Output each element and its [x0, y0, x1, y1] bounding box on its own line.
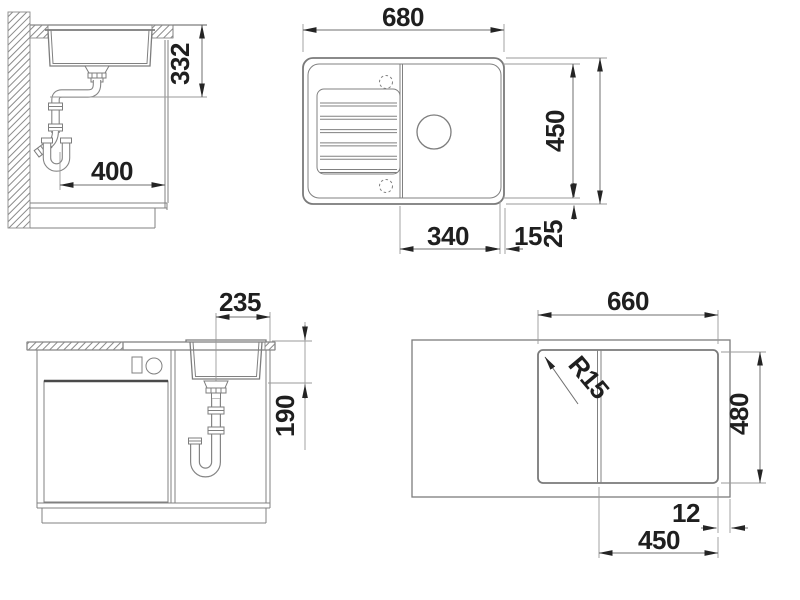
- drain-trap: [34, 131, 71, 168]
- counter-section-right: [265, 342, 275, 350]
- dim-label-r15: R15: [563, 350, 616, 405]
- dim-label-400: 400: [91, 156, 133, 186]
- technical-drawing: 332 400 680 450: [0, 0, 800, 600]
- bowl-outer: [190, 342, 262, 379]
- knob-detail: [146, 358, 162, 374]
- view-cutout: R15 660 480 12 450: [412, 286, 766, 558]
- dim-label-12: 12: [672, 498, 700, 528]
- view-plan: 680 450 340 15 25: [303, 2, 607, 254]
- sink-outline: [303, 58, 504, 204]
- dim-label-450-cutout: 450: [638, 525, 680, 555]
- siphon-trap: [189, 399, 225, 473]
- dim-label-332: 332: [165, 43, 195, 85]
- drain-hole: [417, 115, 451, 149]
- view-side-section: 332 400: [8, 12, 207, 228]
- counter-section-right: [152, 25, 173, 38]
- counter-section-left: [30, 25, 48, 38]
- dim-label-660: 660: [607, 286, 649, 316]
- tap-hole-bottom: [380, 180, 393, 193]
- drain-strainer: [85, 66, 109, 82]
- drainboard-ribs: [320, 103, 397, 173]
- sink-bowl-inner: [51, 30, 149, 64]
- bowl-inner: [193, 342, 259, 377]
- wall-hatch: [8, 12, 30, 228]
- hinge-detail: [132, 357, 142, 373]
- drain-strainer: [204, 381, 228, 399]
- dim-label-450: 450: [540, 110, 570, 152]
- sink-bowl-outer: [48, 30, 152, 66]
- base-cabinet: [37, 350, 270, 523]
- dim-label-480: 480: [724, 393, 754, 435]
- dim-label-235: 235: [219, 287, 261, 317]
- cabinet-door: [44, 381, 168, 502]
- dim-label-25: 25: [538, 220, 568, 248]
- dim-label-680: 680: [382, 2, 424, 32]
- drawing-sheet: 332 400 680 450: [0, 0, 800, 600]
- drainboard: [317, 89, 400, 174]
- dim-label-190: 190: [270, 395, 300, 437]
- drain-pipe: [49, 80, 98, 133]
- sink-inner-edge: [308, 64, 501, 198]
- dim-label-340: 340: [427, 221, 469, 251]
- view-front-section: 235 190: [27, 287, 312, 523]
- counter-section-left: [27, 342, 123, 350]
- tap-hole-top: [380, 76, 393, 89]
